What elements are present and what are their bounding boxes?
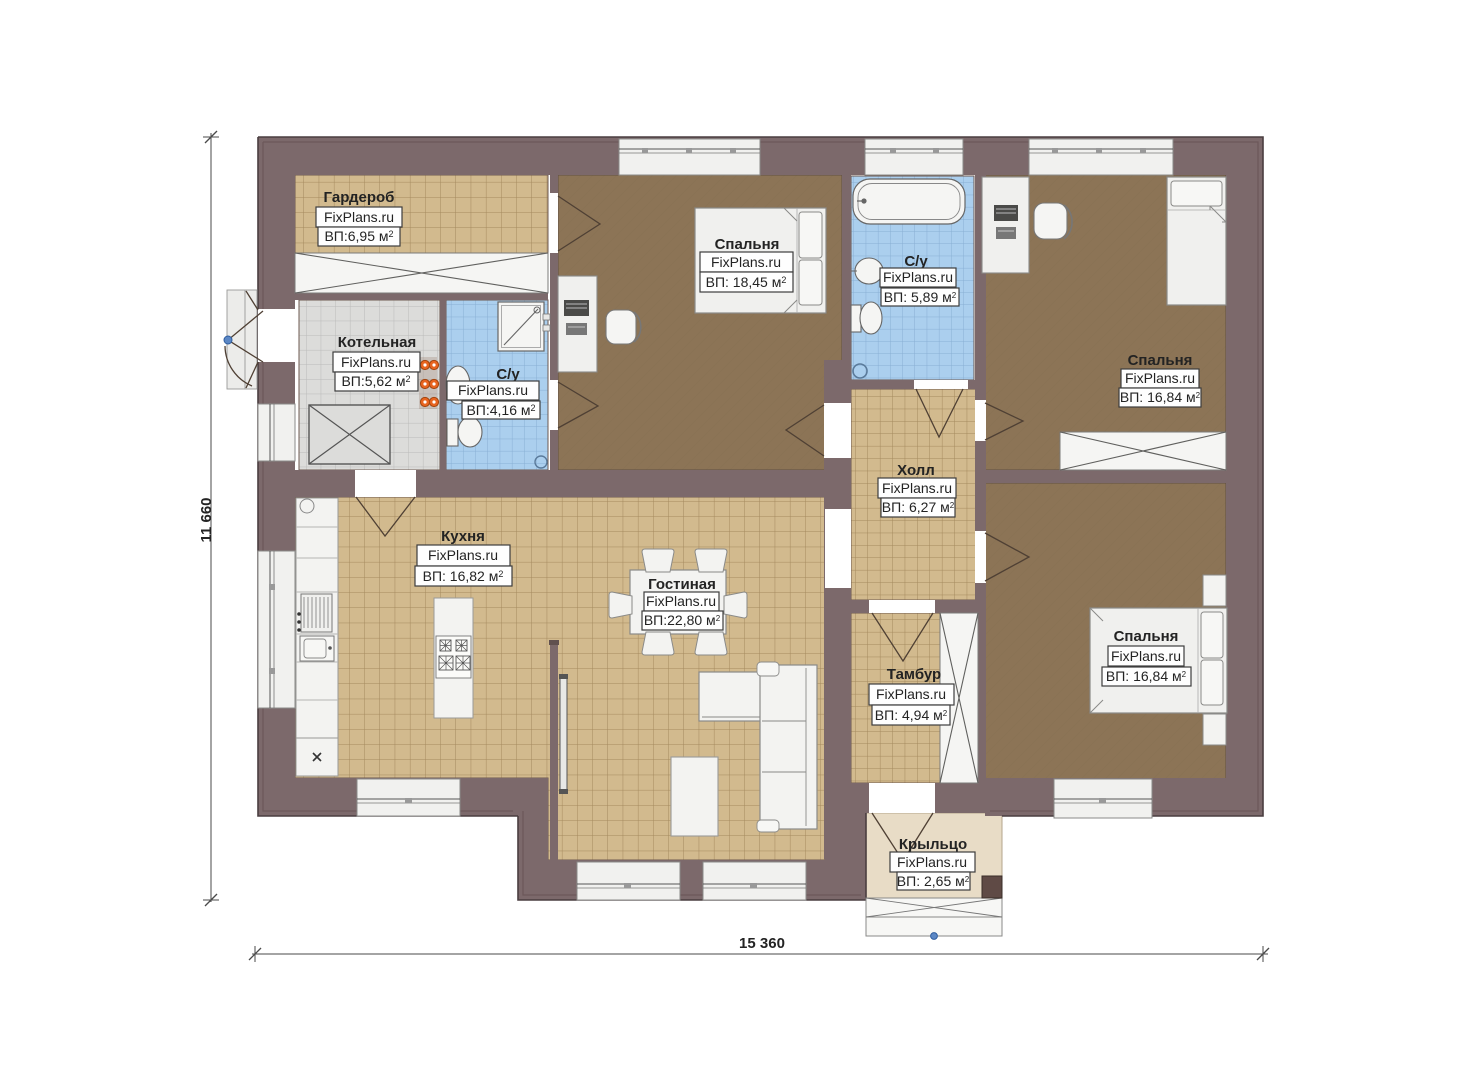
svg-text:FixPlans.ru: FixPlans.ru xyxy=(324,209,394,225)
svg-text:FixPlans.ru: FixPlans.ru xyxy=(1111,648,1181,664)
svg-text:ВП: 16,84 м2: ВП: 16,84 м2 xyxy=(1120,389,1201,405)
svg-text:FixPlans.ru: FixPlans.ru xyxy=(876,686,946,702)
svg-text:Кухня: Кухня xyxy=(441,528,485,545)
svg-text:Холл: Холл xyxy=(897,462,935,479)
svg-text:Гардероб: Гардероб xyxy=(324,189,395,206)
svg-text:ВП: 6,27 м2: ВП: 6,27 м2 xyxy=(882,499,955,515)
svg-text:ВП: 18,45 м2: ВП: 18,45 м2 xyxy=(706,274,787,290)
svg-text:Спальня: Спальня xyxy=(1128,352,1193,369)
svg-text:Спальня: Спальня xyxy=(1114,628,1179,645)
svg-text:ВП: 2,65 м2: ВП: 2,65 м2 xyxy=(897,873,970,889)
svg-text:ВП:6,95 м2: ВП:6,95 м2 xyxy=(324,228,393,244)
svg-text:15 360: 15 360 xyxy=(739,935,785,952)
svg-text:FixPlans.ru: FixPlans.ru xyxy=(883,269,953,285)
svg-text:ВП: 16,84 м2: ВП: 16,84 м2 xyxy=(1106,668,1187,684)
svg-text:FixPlans.ru: FixPlans.ru xyxy=(341,354,411,370)
svg-text:FixPlans.ru: FixPlans.ru xyxy=(458,382,528,398)
svg-text:ВП: 16,82 м2: ВП: 16,82 м2 xyxy=(423,568,504,584)
svg-text:ВП:22,80 м2: ВП:22,80 м2 xyxy=(644,612,721,628)
svg-text:Тамбур: Тамбур xyxy=(887,666,941,683)
svg-text:FixPlans.ru: FixPlans.ru xyxy=(711,254,781,270)
svg-text:FixPlans.ru: FixPlans.ru xyxy=(646,593,716,609)
svg-text:ВП: 4,94 м2: ВП: 4,94 м2 xyxy=(875,707,948,723)
svg-text:ВП:5,62 м2: ВП:5,62 м2 xyxy=(341,373,410,389)
svg-text:FixPlans.ru: FixPlans.ru xyxy=(428,547,498,563)
svg-text:Котельная: Котельная xyxy=(338,334,417,351)
svg-text:Крыльцо: Крыльцо xyxy=(899,836,967,853)
svg-text:FixPlans.ru: FixPlans.ru xyxy=(882,480,952,496)
svg-text:ВП:4,16 м2: ВП:4,16 м2 xyxy=(466,402,535,418)
svg-text:FixPlans.ru: FixPlans.ru xyxy=(1125,370,1195,386)
svg-text:ВП: 5,89 м2: ВП: 5,89 м2 xyxy=(884,289,957,305)
svg-text:Гостиная: Гостиная xyxy=(648,576,716,593)
svg-text:11 660: 11 660 xyxy=(198,497,215,542)
svg-text:FixPlans.ru: FixPlans.ru xyxy=(897,854,967,870)
svg-text:Спальня: Спальня xyxy=(715,236,780,253)
